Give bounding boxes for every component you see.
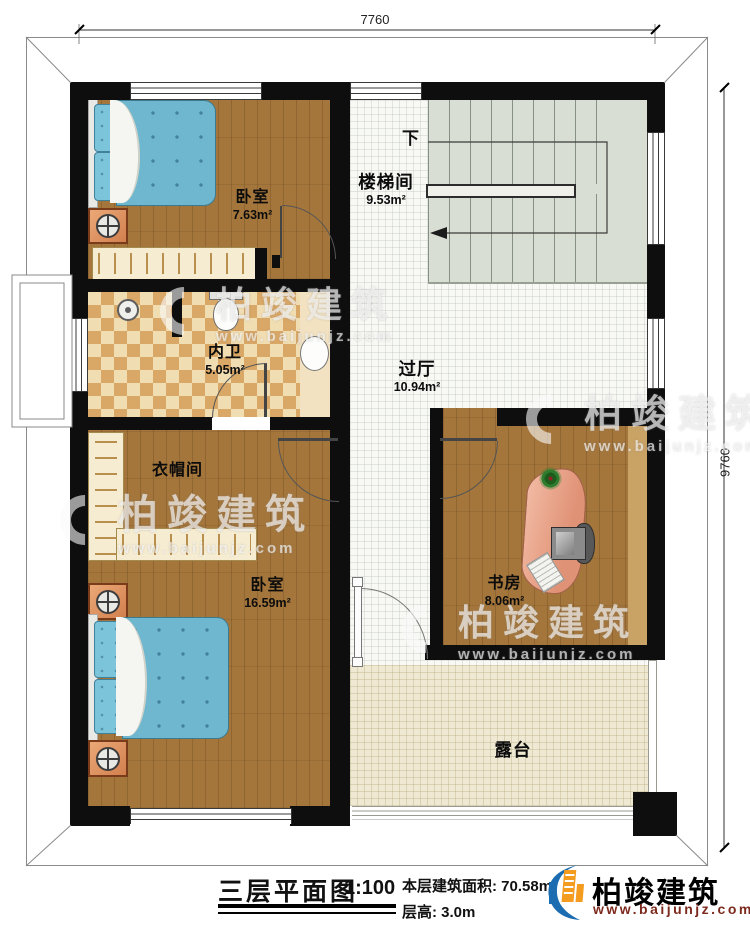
stair-treads-upper [428,100,614,184]
wall [647,243,665,318]
drawing-title: 三层平面图 [218,872,358,908]
wall [497,408,665,426]
lamp-icon [96,747,120,771]
terrace-door-jamb [352,657,363,667]
wall [260,82,350,100]
nightstand [88,740,128,777]
title-underline [218,912,396,914]
terrace-railing-bottom [352,806,660,820]
cloakroom-label: 衣帽间 [130,462,225,481]
window [350,82,422,100]
wall [425,645,665,660]
stair-handrail [426,184,576,198]
wall [647,387,665,652]
bedroom2-label: 卧室16.59m² [220,577,315,611]
lamp-icon [96,214,120,238]
toilet-icon [213,298,239,331]
door-jamb [272,255,280,268]
wall [70,390,88,826]
hanger-icons [98,253,251,274]
terrace-label: 露台 [468,740,558,761]
stair-landing [614,100,647,282]
wall [270,417,330,430]
hanger-icons [122,534,251,555]
study-floor-strip [628,426,647,650]
terrace-railing-right [648,660,657,808]
floor-area-text: 本层建筑面积: 70.58m² [402,875,557,896]
stair-treads-lower [428,194,614,282]
terrace-floor [350,665,648,806]
nightstand [88,208,128,244]
sink-icon [300,336,329,371]
wall [70,417,212,430]
wall [647,82,665,132]
drawing-scale: 1:100 [344,877,395,900]
study-label: 书房8.06m² [462,575,547,609]
shower-head-icon [117,299,139,321]
wall [88,279,330,292]
floor-height-text: 层高: 3.0m [402,901,475,922]
bedroom1-label: 卧室7.63m² [205,189,300,223]
window [130,82,262,100]
computer-monitor-icon [551,527,586,560]
window [647,318,665,389]
brand-website: www.baijunjz.com [593,901,750,917]
dimension-top: 7760 [338,12,412,27]
lamp-icon [96,590,120,614]
brand-logo-icon [542,862,590,922]
hall-label: 过厅10.94m² [372,359,462,394]
wall [172,292,182,337]
dimension-right: 9760 [718,428,733,498]
wall [420,82,665,100]
wall [290,806,350,826]
hanger-icons [95,438,117,555]
wall [255,248,267,279]
closet-horizontal [116,528,257,561]
terrace-door-jamb [352,577,363,587]
plant-icon [539,467,562,490]
window [130,808,292,824]
window [647,132,665,245]
floor-plan-page: 卧室7.63m² 楼梯间9.53m² 下 内卫5.05m² 过厅10.94m² … [0,0,750,929]
stair-down-label: 下 [402,124,419,149]
corner-column [633,792,677,836]
bathroom-label: 内卫5.05m² [180,344,270,378]
stairwell-label: 楼梯间9.53m² [340,172,432,207]
wall [70,82,88,318]
wardrobe [92,247,257,280]
window [70,318,88,392]
title-underline [218,904,396,908]
wall [70,806,130,826]
